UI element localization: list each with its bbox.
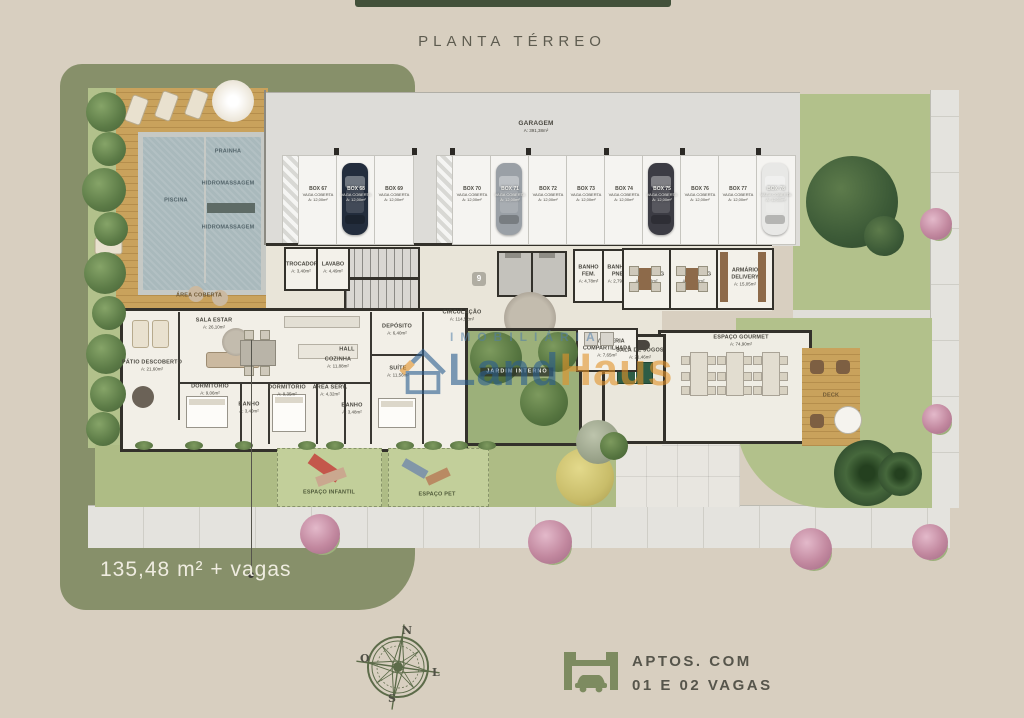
chair-icon: [681, 372, 690, 381]
decor-shape: [577, 675, 605, 684]
decor-shape: [275, 397, 303, 403]
decor-shape: A: 9,35m²: [268, 392, 306, 398]
room-label-deck: DECK: [823, 392, 839, 399]
decor-shape: A: 12,00m²: [299, 197, 337, 202]
wall: [264, 90, 266, 245]
garage-stall-box-70: BOX 70VAGA COBERTAA: 12,00m²: [452, 155, 492, 245]
decor-shape: [539, 253, 555, 258]
room-label-deposito: DEPÓSITOA: 6,40m²: [382, 324, 412, 337]
decor-shape: A: 12,00m²: [375, 197, 413, 202]
deck-chair-icon: [810, 360, 824, 374]
decor-shape: HALL: [339, 346, 354, 353]
room-label-circulacao: CIRCULAÇÃOA: 114,52m²: [443, 310, 482, 323]
chair-icon: [779, 372, 788, 381]
decor-shape: A: 4,32m²: [313, 392, 348, 398]
hedge-icon: [450, 441, 468, 450]
decor-shape: [651, 215, 671, 224]
decor-shape: [560, 642, 622, 694]
apartments-caption-line1: APTOS. COM: [632, 650, 773, 674]
tree-icon: [86, 92, 126, 132]
chair-icon: [629, 282, 639, 292]
pool-lane-divider: [204, 134, 206, 283]
decor-shape: A: 26,10m²: [196, 325, 233, 331]
decor-shape: A: 11,88m²: [325, 364, 351, 370]
room-trocador: TROCADORA: 3,40m²: [284, 247, 318, 291]
decor-shape: A: 6,40m²: [382, 331, 412, 337]
room-label-piscina: PISCINA: [164, 197, 188, 204]
stall-label: BOX 76VAGA COBERTAA: 12,00m²: [681, 186, 719, 202]
room-label-espaco_pet: ESPAÇO PET: [418, 491, 455, 498]
decor-shape: A: 21,60m²: [122, 367, 182, 373]
garage-stall-box-73: BOX 73VAGA COBERTAA: 12,00m²: [566, 155, 606, 245]
pillar: [412, 148, 417, 155]
washer-icon: [584, 332, 598, 346]
decor-shape: A: 3,40m²: [286, 269, 316, 275]
garage-stall-box-76: BOX 76VAGA COBERTAA: 12,00m²: [680, 155, 720, 245]
decor-shape: SALA ESTAR: [196, 318, 233, 325]
decor-shape: PRAINHA: [215, 148, 241, 155]
deck-table: [834, 406, 862, 434]
garage-stall-box-78: BOX 78VAGA COBERTAA: 12,00m²: [756, 155, 796, 245]
decor-shape: A: 114,52m²: [443, 317, 482, 323]
garage-stall-box-69: BOX 69VAGA COBERTAA: 12,00m²: [374, 155, 414, 245]
decor-shape: [596, 686, 603, 693]
room-label-cozinha: COZINHAA: 11,88m²: [325, 357, 351, 370]
apartments-caption-line2: 01 E 02 VAGAS: [632, 674, 773, 698]
meeting-table: [685, 268, 698, 290]
room-banho_fem: BANHO FEM.A: 4,78m²: [573, 249, 604, 303]
sidewalk-right: [930, 90, 959, 508]
decor-shape: A: 391,38m²: [518, 128, 553, 134]
garage-stall-box-74: BOX 74VAGA COBERTAA: 12,00m²: [604, 155, 644, 245]
decor-shape: [765, 215, 785, 224]
stall-label: BOX 78VAGA COBERTAA: 12,00m²: [757, 186, 795, 202]
tree-icon: [520, 378, 568, 426]
patio-table: [132, 386, 154, 408]
decor-shape: [499, 215, 519, 224]
decor-shape: A: 3,48m²: [341, 410, 362, 416]
chair-icon: [698, 266, 708, 276]
room-label-dormitorio_1: DORMITÓRIOA: 9,06m²: [191, 384, 229, 397]
chair-icon: [681, 386, 690, 395]
tree-icon: [86, 334, 126, 374]
decor-shape: A: 12,00m²: [681, 197, 719, 202]
wall: [422, 312, 424, 444]
decor-shape: LAVABO: [318, 261, 348, 268]
garage-icon: [560, 642, 622, 694]
decor-shape: A: 21,46m²: [616, 355, 664, 361]
stall-label: BOX 75VAGA COBERTAA: 12,00m²: [643, 186, 681, 202]
garage-stall-box-71: BOX 71VAGA COBERTAA: 12,00m²: [490, 155, 530, 245]
decor-shape: BANHO FEM.: [575, 264, 602, 278]
decor-shape: HIDROMASSAGEM: [202, 224, 255, 231]
pillar: [680, 148, 685, 155]
decor-shape: [580, 686, 587, 693]
hedge-icon: [185, 441, 203, 450]
chair-icon: [717, 386, 726, 395]
decor-shape: ESPAÇO GOURMET: [713, 335, 768, 342]
decor-shape: A: 9,06m²: [191, 391, 229, 397]
hedge-icon: [326, 441, 344, 450]
parasol-icon: [212, 80, 254, 122]
decor-shape: A: 74,90m²: [713, 342, 768, 348]
decor-shape: A: 12,00m²: [719, 197, 757, 202]
chair-icon: [753, 386, 762, 395]
decor-shape: TROCADOR: [286, 261, 316, 268]
stall-label: BOX 67VAGA COBERTAA: 12,00m²: [299, 186, 337, 202]
tree-icon: [600, 432, 628, 460]
flower-shrub-icon: [912, 524, 948, 560]
tree-icon: [92, 132, 126, 166]
decor-shape: BANHO: [341, 403, 362, 410]
flower-shrub-icon: [528, 520, 572, 564]
flower-shrub-icon: [920, 208, 952, 240]
elevator: [531, 251, 567, 297]
room-label-banho_2: BANHOA: 3,48m²: [341, 403, 362, 416]
decor-shape: [381, 401, 413, 407]
room-label-banho_1: BANHOA: 3,40m²: [238, 402, 259, 415]
decor-shape: CIRCULAÇÃO: [443, 310, 482, 317]
hedge-icon: [424, 441, 442, 450]
chair-icon: [676, 282, 686, 292]
tree-icon: [878, 452, 922, 496]
pillar: [526, 148, 531, 155]
room-label-dormitorio_2: DORMITÓRIOA: 9,35m²: [268, 385, 306, 398]
chair-icon: [717, 356, 726, 365]
staircase: [344, 247, 420, 313]
stall-label: BOX 68VAGA COBERTAA: 12,00m²: [337, 186, 375, 202]
room-label-patio: PÁTIO DESCOBERTOA: 21,60m²: [122, 360, 182, 373]
flower-shrub-icon: [300, 514, 340, 554]
room-label-sala_jogos: SALA DE JOGOSA: 21,46m²: [616, 348, 664, 361]
decor-shape: [346, 277, 418, 280]
decor-shape: A: 12,00m²: [757, 197, 795, 202]
decor-shape: DEPÓSITO: [382, 324, 412, 331]
tree-icon: [84, 252, 126, 294]
room-label-trocador: TROCADORA: 3,40m²: [286, 261, 316, 274]
garage-stall-box-68: BOX 68VAGA COBERTAA: 12,00m²: [336, 155, 376, 245]
garage-stall-box-77: BOX 77VAGA COBERTAA: 12,00m²: [718, 155, 758, 245]
compass-s: S: [388, 692, 396, 705]
pillar: [604, 148, 609, 155]
stall-label: BOX 70VAGA COBERTAA: 12,00m²: [453, 186, 491, 202]
decor-shape: ÁREA COBERTA: [176, 292, 222, 299]
delivery-lockers: [720, 252, 728, 302]
room-label-jardim_interno: JARDIM INTERNO: [480, 367, 553, 376]
chair-icon: [707, 372, 716, 381]
stall-label: BOX 74VAGA COBERTAA: 12,00m²: [605, 186, 643, 202]
tree-icon: [94, 212, 128, 246]
decor-shape: A: 12,00m²: [491, 197, 529, 202]
room-label-sala_estar: SALA ESTARA: 26,10m²: [196, 318, 233, 331]
decor-shape: [575, 683, 607, 688]
hedge-icon: [298, 441, 316, 450]
garage-stall-box-75: BOX 75VAGA COBERTAA: 12,00m²: [642, 155, 682, 245]
flower-shrub-icon: [790, 528, 832, 570]
deck-chair-icon: [836, 360, 850, 374]
decor-shape: A: 12,00m²: [567, 197, 605, 202]
chair-icon: [681, 356, 690, 365]
elevator: [497, 251, 533, 297]
gourmet-table: [726, 352, 744, 396]
walkway-strip: [793, 310, 930, 318]
stall-label: BOX 69VAGA COBERTAA: 12,00m²: [375, 186, 413, 202]
stall-label: BOX 73VAGA COBERTAA: 12,00m²: [567, 186, 605, 202]
decor-shape: [345, 215, 365, 224]
room-label-banho_fem: BANHO FEM.A: 4,78m²: [575, 264, 602, 284]
decor-shape: DORMITÓRIO: [191, 384, 229, 391]
chair-icon: [743, 386, 752, 395]
tree-icon: [86, 412, 120, 446]
decor-shape: ESPAÇO INFANTIL: [303, 489, 355, 496]
chair-icon: [629, 266, 639, 276]
patio-lounger-icon: [132, 320, 149, 348]
stall-label: BOX 77VAGA COBERTAA: 12,00m²: [719, 186, 757, 202]
hedge-icon: [478, 441, 496, 450]
bed-icon: [272, 394, 306, 432]
chair-icon: [779, 386, 788, 395]
room-label-area_serv: ÁREA SERV.A: 4,32m²: [313, 385, 348, 398]
pergola-pavement: [616, 440, 740, 507]
decor-shape: A: 12,00m²: [337, 197, 375, 202]
room-label-area_coberta: ÁREA COBERTA: [176, 292, 222, 299]
gourmet-table: [762, 352, 780, 396]
decor-shape: A: 12,00m²: [453, 197, 491, 202]
chair-icon: [743, 372, 752, 381]
swimming-pool: [138, 132, 266, 295]
room-label-espaco_gourmet: ESPAÇO GOURMETA: 74,90m²: [713, 335, 768, 348]
decor-shape: [505, 253, 521, 258]
flower-shrub-icon: [922, 404, 952, 434]
page-title: PLANTA TÉRREO: [0, 33, 1024, 50]
decor-shape: A: 12,00m²: [643, 197, 681, 202]
kitchen-counter: [284, 316, 360, 328]
chair-icon: [260, 330, 270, 340]
top-accent-bar: [355, 0, 671, 7]
decor-shape: PÁTIO DESCOBERTO: [122, 360, 182, 367]
washer-icon: [600, 332, 614, 346]
decor-shape: SUÍTE: [387, 366, 409, 373]
chair-icon: [651, 266, 661, 276]
chair-icon: [753, 372, 762, 381]
chair-icon: [698, 282, 708, 292]
room-label-hall: HALL: [339, 346, 354, 353]
decor-shape: A: 4,78m²: [575, 279, 602, 285]
hedge-icon: [396, 441, 414, 450]
pool-bench: [207, 203, 255, 213]
room-label-suite: SUÍTEA: 11,56m²: [387, 366, 409, 379]
decor-shape: JARDIM INTERNO: [486, 368, 547, 375]
decor-shape: A: 11,56m²: [387, 373, 409, 379]
chair-icon: [651, 282, 661, 292]
pillar: [334, 148, 339, 155]
decor-shape: A: 12,00m²: [529, 197, 567, 202]
stall-label: BOX 71VAGA COBERTAA: 12,00m²: [491, 186, 529, 202]
pillar: [450, 148, 455, 155]
chair-icon: [779, 356, 788, 365]
deck-chair-icon: [810, 414, 824, 428]
decor-shape: A: 4,49m²: [318, 269, 348, 275]
compass-rose: N S O L: [352, 622, 444, 712]
room-label-hidro_2: HIDROMASSAGEM: [202, 224, 255, 231]
tree-icon: [92, 296, 126, 330]
decor-shape: DECK: [823, 392, 839, 399]
decor-shape: COZINHA: [325, 357, 351, 364]
compass-o: O: [360, 652, 370, 665]
chair-icon: [244, 366, 254, 376]
pillar: [756, 148, 761, 155]
hedge-icon: [135, 441, 153, 450]
delivery-lockers: [758, 252, 766, 302]
decor-shape: BANHO: [238, 402, 259, 409]
decor-shape: PISCINA: [164, 197, 188, 204]
room-label-hidro_1: HIDROMASSAGEM: [202, 180, 255, 187]
tree-icon: [538, 332, 578, 372]
decor-shape: ÁREA SERV.: [313, 385, 348, 392]
room-label-garagem: GARAGEMA: 391,38m²: [518, 120, 553, 134]
room-label-prainha: PRAINHA: [215, 148, 241, 155]
tree-icon: [82, 168, 126, 212]
chair-icon: [717, 372, 726, 381]
room-label-lavabo: LAVABOA: 4,49m²: [318, 261, 348, 274]
tree-icon: [90, 376, 126, 412]
patio-lounger-icon: [152, 320, 169, 348]
elevator-count-badge: 9: [472, 272, 486, 286]
chair-icon: [244, 330, 254, 340]
chair-icon: [707, 356, 716, 365]
chair-icon: [707, 386, 716, 395]
apartments-caption: APTOS. COM 01 E 02 VAGAS: [632, 650, 773, 698]
decor-shape: ESPAÇO PET: [418, 491, 455, 498]
gourmet-table: [690, 352, 708, 396]
decor-shape: HIDROMASSAGEM: [202, 180, 255, 187]
tree-icon: [864, 216, 904, 256]
decor-shape: [392, 661, 403, 672]
chair-icon: [260, 366, 270, 376]
decor-shape: A: 3,40m²: [238, 409, 259, 415]
meeting-table: [638, 268, 651, 290]
garage-stall-box-67: BOX 67VAGA COBERTAA: 12,00m²: [298, 155, 338, 245]
compass-n: N: [402, 624, 412, 637]
decor-shape: SALA DE JOGOS: [616, 348, 664, 355]
floor-plan-page: PLANTA TÉRREO 9: [0, 0, 1024, 713]
bed-icon: [378, 398, 416, 428]
decor-shape: GARAGEM: [518, 120, 553, 128]
dining-table: [240, 340, 276, 366]
chair-icon: [753, 356, 762, 365]
wall: [370, 312, 372, 444]
bed-icon: [186, 396, 228, 428]
wall: [370, 354, 422, 356]
leader-line: [251, 340, 252, 575]
decor-shape: A: 12,00m²: [605, 197, 643, 202]
decor-shape: DORMITÓRIO: [268, 385, 306, 392]
garage-stall-box-72: BOX 72VAGA COBERTAA: 12,00m²: [528, 155, 568, 245]
chair-icon: [743, 356, 752, 365]
decor-shape: [189, 399, 225, 405]
chair-icon: [676, 266, 686, 276]
stall-label: BOX 72VAGA COBERTAA: 12,00m²: [529, 186, 567, 202]
room-label-espaco_infantil: ESPAÇO INFANTIL: [303, 489, 355, 496]
compass-l: L: [432, 666, 440, 679]
room-lavabo: LAVABOA: 4,49m²: [316, 247, 350, 291]
unit-area-text: 135,48 m² + vagas: [100, 558, 292, 582]
